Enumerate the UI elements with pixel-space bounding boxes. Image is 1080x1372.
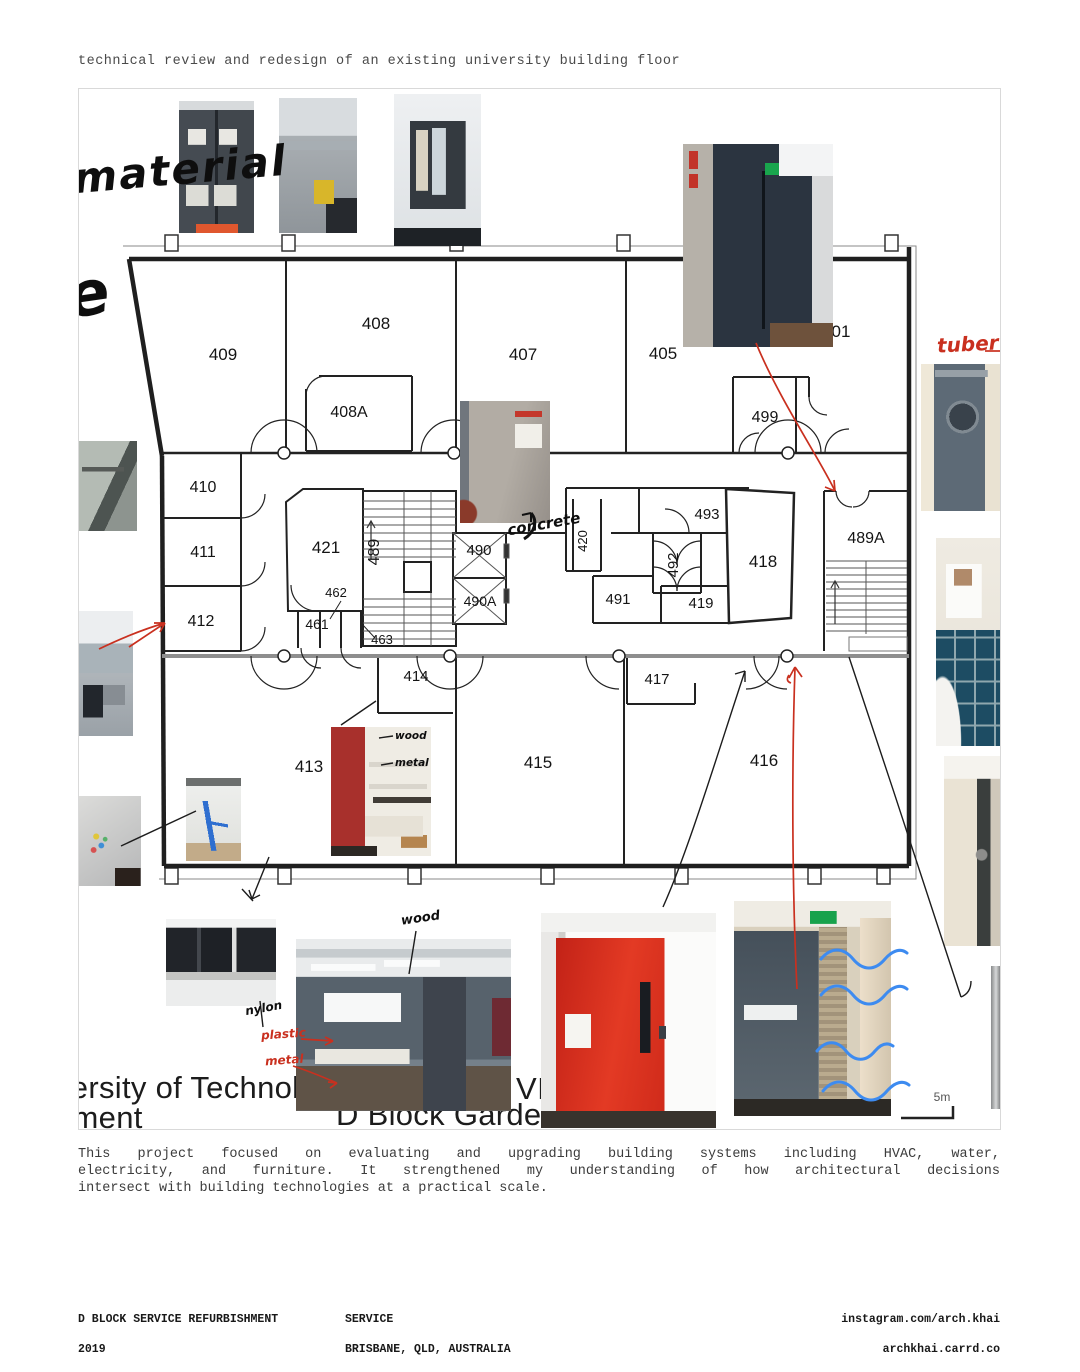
portfolio-page: { "header": { "title": "technical review… <box>0 0 1080 1350</box>
black-arrows <box>121 657 971 1027</box>
footer-category: SERVICE <box>345 1312 511 1327</box>
collage-board: versity of Technolog ement VI D Block Ga… <box>78 88 1001 1130</box>
handwritten-metal-small: metal <box>395 757 429 769</box>
scale-bar: 5m <box>901 1090 953 1118</box>
footer-project-block: D BLOCK SERVICE REFURBISHMENT 2019 <box>78 1297 278 1372</box>
footer-category-block: SERVICE BRISBANE, QLD, AUSTRALIA <box>345 1297 511 1372</box>
page-title: technical review and redesign of an exis… <box>78 54 680 69</box>
handwritten-wood-small: wood <box>395 730 427 742</box>
blue-wave-marks <box>817 950 909 1100</box>
handwritten-tuber: tuber <box>936 330 999 357</box>
description-line-3: intersect with building technologies at … <box>78 1180 1000 1197</box>
footer-links-block: instagram.com/arch.khai archkhai.carrd.c… <box>841 1297 1000 1372</box>
annotation-layer: 5m <box>79 89 1000 1129</box>
description-line-2: electricity, and furniture. It strengthe… <box>78 1163 1000 1180</box>
footer-project-title: D BLOCK SERVICE REFURBISHMENT <box>78 1312 278 1327</box>
scale-label: 5m <box>934 1090 951 1104</box>
project-description: This project focused on evaluating and u… <box>78 1146 1000 1197</box>
footer-link-instagram: instagram.com/arch.khai <box>841 1312 1000 1327</box>
handwritten-metal-red: metal <box>265 1052 304 1069</box>
description-line-1: This project focused on evaluating and u… <box>78 1146 1000 1163</box>
red-arrows <box>99 343 1000 1088</box>
